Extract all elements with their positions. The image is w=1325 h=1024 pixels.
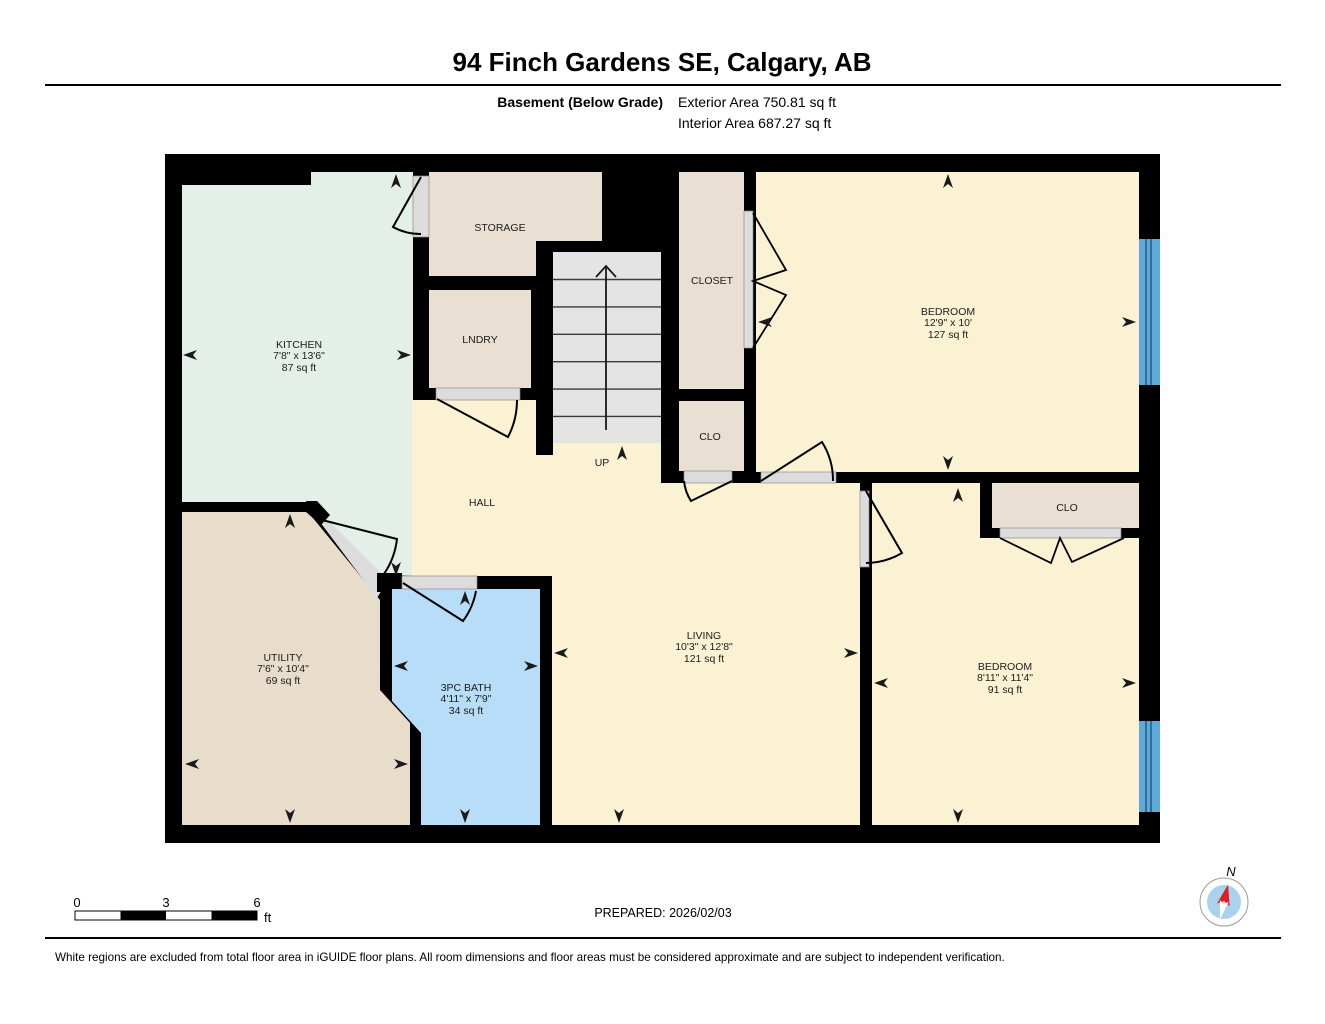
svg-text:8'11" x 11'4": 8'11" x 11'4" — [977, 672, 1033, 684]
svg-text:69 sq ft: 69 sq ft — [266, 675, 301, 687]
svg-text:Exterior Area 750.81 sq ft: Exterior Area 750.81 sq ft — [678, 94, 836, 110]
svg-text:LNDRY: LNDRY — [462, 334, 497, 346]
svg-text:CLOSET: CLOSET — [691, 275, 734, 287]
svg-text:6: 6 — [253, 895, 260, 910]
svg-text:94 Finch Gardens SE, Calgary,: 94 Finch Gardens SE, Calgary, AB — [452, 47, 871, 77]
svg-text:N: N — [1226, 864, 1236, 879]
svg-text:CLO: CLO — [699, 431, 721, 443]
svg-text:34 sq ft: 34 sq ft — [449, 705, 484, 717]
svg-text:0: 0 — [73, 895, 80, 910]
svg-text:10'3" x 12'8": 10'3" x 12'8" — [675, 641, 733, 653]
svg-text:4'11" x 7'9": 4'11" x 7'9" — [441, 693, 492, 705]
svg-text:ft: ft — [264, 910, 272, 925]
svg-text:3: 3 — [162, 895, 169, 910]
svg-text:Interior Area 687.27 sq ft: Interior Area 687.27 sq ft — [678, 115, 831, 131]
svg-text:PREPARED: 2026/02/03: PREPARED: 2026/02/03 — [594, 906, 731, 920]
svg-text:STORAGE: STORAGE — [474, 222, 525, 234]
svg-text:7'8" x 13'6": 7'8" x 13'6" — [273, 350, 325, 362]
svg-text:121 sq ft: 121 sq ft — [684, 653, 724, 665]
svg-text:HALL: HALL — [469, 497, 495, 509]
svg-text:White regions are excluded fro: White regions are excluded from total fl… — [55, 951, 1005, 964]
svg-text:91 sq ft: 91 sq ft — [988, 684, 1023, 696]
svg-text:7'6" x 10'4": 7'6" x 10'4" — [257, 663, 309, 675]
svg-text:CLO: CLO — [1056, 502, 1078, 514]
svg-text:12'9" x 10': 12'9" x 10' — [924, 317, 972, 329]
svg-text:127 sq ft: 127 sq ft — [928, 329, 968, 341]
svg-text:Basement (Below Grade): Basement (Below Grade) — [497, 94, 663, 110]
svg-text:UP: UP — [595, 457, 610, 469]
svg-text:87 sq ft: 87 sq ft — [282, 362, 317, 374]
